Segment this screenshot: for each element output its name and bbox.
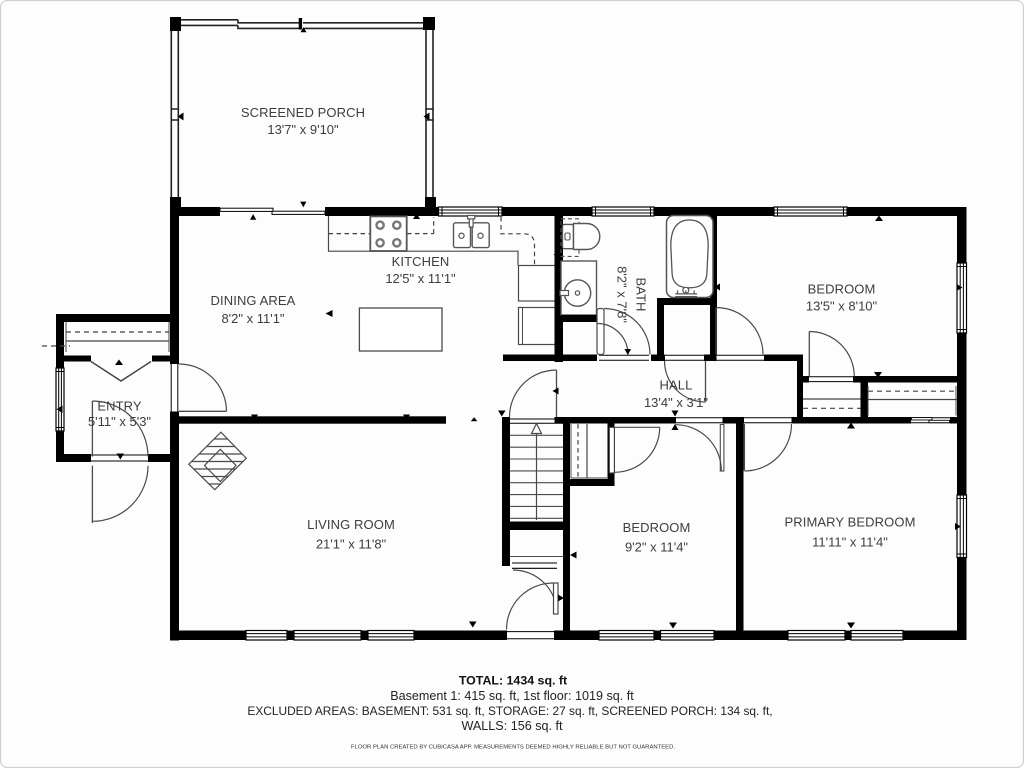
svg-text:12'5" x 11'1": 12'5" x 11'1" <box>385 271 456 286</box>
svg-text:SCREENED PORCH: SCREENED PORCH <box>241 105 365 120</box>
svg-text:LIVING ROOM: LIVING ROOM <box>307 517 395 532</box>
svg-text:11'11" x 11'4": 11'11" x 11'4" <box>812 535 888 550</box>
svg-text:Basement 1: 415 sq. ft, 1st fl: Basement 1: 415 sq. ft, 1st floor: 1019 … <box>390 689 634 703</box>
svg-text:13'5" x 8'10": 13'5" x 8'10" <box>806 299 878 314</box>
svg-text:ENTRY: ENTRY <box>97 399 142 414</box>
svg-text:EXCLUDED AREAS: BASEMENT: 531: EXCLUDED AREAS: BASEMENT: 531 sq. ft, ST… <box>247 704 772 718</box>
svg-text:9'2" x 11'4": 9'2" x 11'4" <box>625 540 688 555</box>
svg-text:13'4" x 3'1": 13'4" x 3'1" <box>644 395 708 410</box>
svg-text:PRIMARY BEDROOM: PRIMARY BEDROOM <box>784 515 915 530</box>
svg-text:HALL: HALL <box>660 378 693 393</box>
svg-text:WALLS: 156 sq. ft: WALLS: 156 sq. ft <box>461 719 563 733</box>
svg-text:BATH: BATH <box>634 277 649 311</box>
svg-text:BEDROOM: BEDROOM <box>623 520 691 535</box>
svg-text:TOTAL: 1434 sq. ft: TOTAL: 1434 sq. ft <box>459 674 567 688</box>
svg-text:FLOOR PLAN CREATED BY CUBICASA: FLOOR PLAN CREATED BY CUBICASA APP. MEAS… <box>351 745 675 751</box>
svg-text:21'1" x 11'8": 21'1" x 11'8" <box>316 537 387 552</box>
svg-text:5'11" x 5'3": 5'11" x 5'3" <box>88 414 151 429</box>
svg-text:BEDROOM: BEDROOM <box>808 282 876 297</box>
svg-text:KITCHEN: KITCHEN <box>392 254 450 269</box>
svg-text:13'7" x 9'10": 13'7" x 9'10" <box>267 122 339 137</box>
svg-text:DINING AREA: DINING AREA <box>211 293 296 308</box>
svg-text:8'2" x 11'1": 8'2" x 11'1" <box>221 311 284 326</box>
